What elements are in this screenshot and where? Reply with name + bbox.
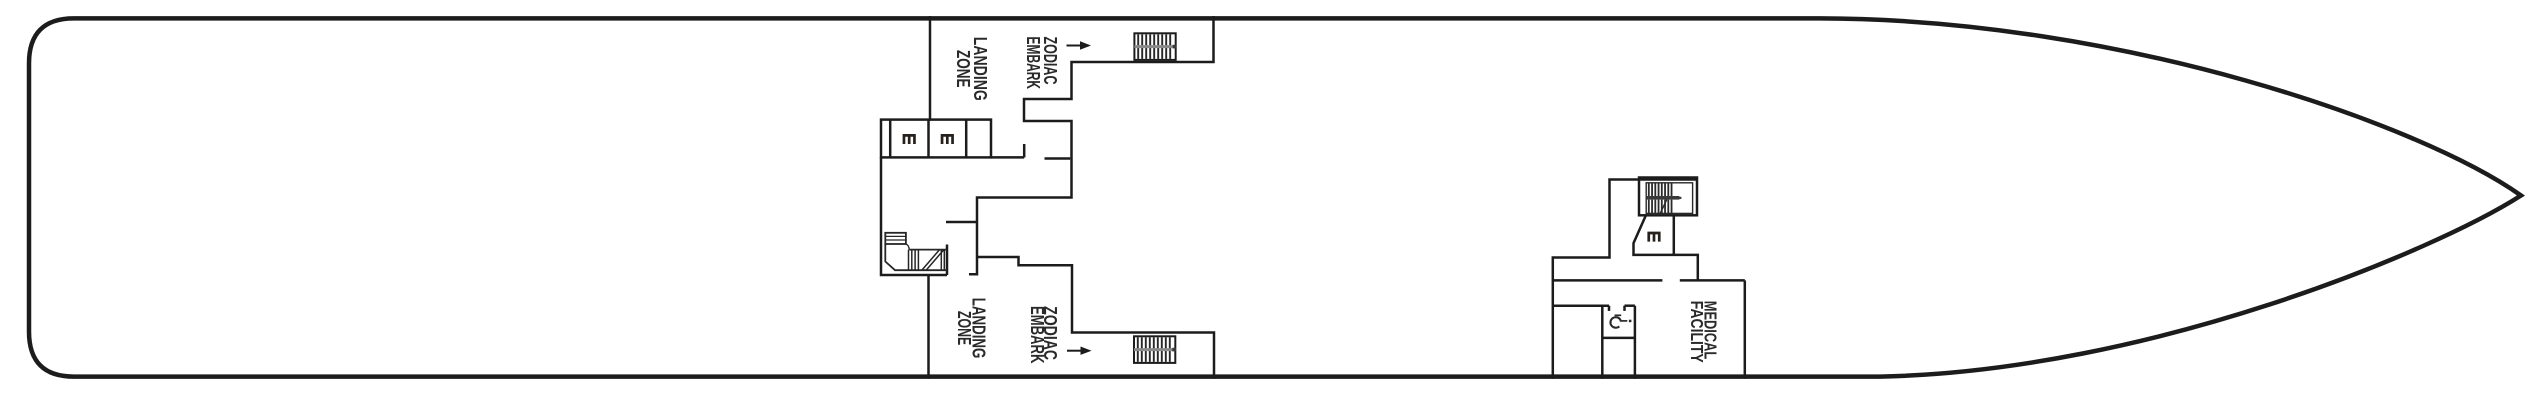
svg-text:ZONE: ZONE: [953, 50, 973, 88]
svg-text:FACILITY: FACILITY: [1687, 301, 1707, 363]
svg-text:ZONE: ZONE: [954, 311, 974, 345]
svg-text:EMBARK: EMBARK: [1027, 306, 1047, 363]
svg-text:EMBARK: EMBARK: [1023, 37, 1043, 90]
